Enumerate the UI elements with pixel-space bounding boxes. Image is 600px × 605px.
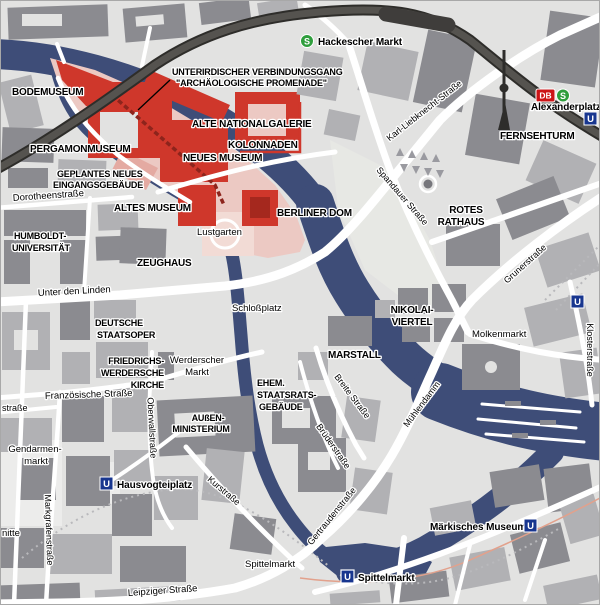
label-neues-museum: NEUES MUSEUM: [183, 153, 262, 164]
fountain-icon: [424, 180, 433, 189]
svg-text:U: U: [587, 114, 594, 125]
station-label-hackescher-markt: Hackescher Markt: [318, 37, 403, 48]
label-lustgarten: Lustgarten: [197, 227, 242, 238]
label-staatsoper-1: DEUTSCHE: [95, 318, 143, 328]
label-staatsrat-3: GEBÄUDE: [259, 402, 303, 412]
label-staatsrat-1: EHEM.: [257, 378, 285, 388]
station-label-hausvogteiplatz: Hausvogteiplatz: [117, 480, 192, 491]
fernsehturm-block: [465, 94, 530, 165]
label-zeughaus: ZEUGHAUS: [137, 258, 192, 269]
label-rotes-rathaus-1: ROTES: [449, 205, 483, 216]
station-label-spittelmarkt: Spittelmarkt: [358, 573, 415, 584]
city-map-canvas: BODEMUSEUM PERGAMONMUSEUM GEPLANTES NEUE…: [0, 0, 600, 605]
label-kirche-1: FRIEDRICHS-: [108, 356, 164, 366]
label-gendarmenmarkt-2: markt: [24, 456, 48, 467]
label-aussenministerium-1: AUßEN-: [192, 413, 225, 423]
label-passage-1: UNTERIRDISCHER VERBINDUNGSGANG: [172, 67, 343, 77]
label-werderscher-2: Markt: [185, 367, 209, 378]
label-nikolaiviertel-1: NIKOLAI-: [391, 305, 434, 316]
map-svg: BODEMUSEUM PERGAMONMUSEUM GEPLANTES NEUE…: [0, 0, 600, 605]
sbahn-logo-hackescher: S: [301, 35, 314, 48]
street-label-klosterstrasse: Klosterstraße: [585, 323, 595, 377]
label-staatsoper-2: STAATSOPER: [97, 330, 156, 340]
sbahn-logo-alexanderplatz: S: [557, 89, 570, 102]
label-pergamonmuseum: PERGAMONMUSEUM: [30, 144, 131, 155]
label-fernsehturm: FERNSEHTURM: [500, 131, 574, 142]
label-alte-nationalgalerie: ALTE NATIONALGALERIE: [192, 119, 312, 130]
marstall-building: [328, 316, 372, 346]
label-kolonnaden: KOLONNADEN: [228, 140, 298, 151]
stadthaus-building: [462, 344, 520, 390]
label-rotes-rathaus-2: RATHAUS: [438, 217, 485, 228]
ubahn-logo-hausvogteiplatz: U: [100, 477, 113, 490]
svg-text:DB: DB: [539, 91, 551, 101]
ubahn-logo-maerkisches-museum: U: [524, 519, 537, 532]
label-spittelmarkt-place: Spittelmarkt: [245, 559, 296, 570]
label-passage-2: "ARCHÄOLOGISCHE PROMENADE": [176, 78, 327, 88]
label-kirche-2: WERDERSCHE: [101, 368, 164, 378]
ubahn-logo-alexanderplatz: U: [584, 112, 597, 125]
street-label-partial-nitte: nitte: [2, 528, 20, 539]
label-staatsrat-2: STAATSRATS-: [257, 390, 316, 400]
label-aussenministerium-2: MINISTERIUM: [172, 424, 229, 434]
label-bodemuseum: BODEMUSEUM: [12, 87, 83, 98]
label-geplantes-1: GEPLANTES NEUES: [57, 169, 143, 179]
svg-text:U: U: [344, 572, 351, 583]
db-logo-alexanderplatz: DB: [536, 89, 555, 102]
label-gendarmenmarkt-1: Gendarmen-: [8, 444, 61, 455]
ubahn-logo-klosterstrasse: U: [571, 295, 584, 308]
label-molkenmarkt: Molkenmarkt: [472, 329, 527, 340]
svg-text:S: S: [304, 37, 310, 47]
label-humboldt-2: UNIVERSITÄT: [12, 243, 71, 253]
label-altes-museum: ALTES MUSEUM: [114, 203, 191, 214]
label-marstall: MARSTALL: [328, 350, 381, 361]
svg-text:U: U: [574, 297, 581, 308]
label-humboldt-1: HUMBOLDT-: [14, 231, 66, 241]
street-label-partial-strasse: straße: [2, 403, 28, 413]
svg-text:U: U: [103, 479, 110, 490]
station-label-maerkisches-museum: Märkisches Museum: [430, 522, 526, 533]
svg-text:S: S: [560, 91, 566, 101]
label-nikolaiviertel-2: VIERTEL: [392, 317, 433, 328]
label-kirche-3: KIRCHE: [131, 380, 164, 390]
ubahn-logo-spittelmarkt: U: [341, 570, 354, 583]
label-schlossplatz: Schloßplatz: [232, 303, 282, 314]
label-werderscher-1: Werderscher: [170, 355, 224, 366]
svg-text:U: U: [527, 521, 534, 532]
label-berliner-dom: BERLINER DOM: [277, 208, 352, 219]
station-label-alexanderplatz: Alexanderplatz: [531, 102, 600, 113]
